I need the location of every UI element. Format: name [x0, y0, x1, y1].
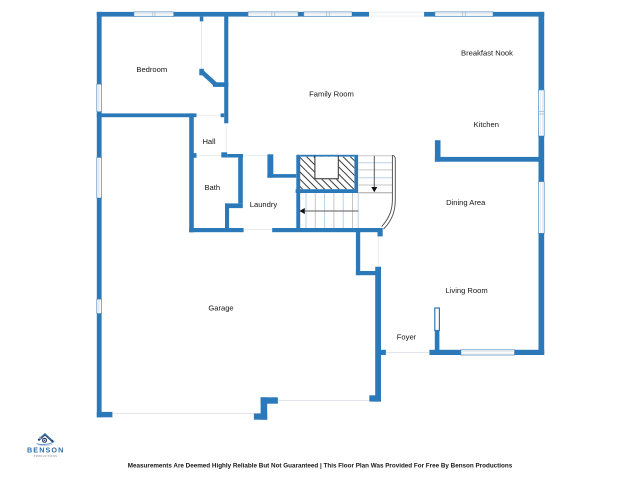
- svg-text:Foyer: Foyer: [397, 333, 417, 342]
- svg-text:Bedroom: Bedroom: [136, 65, 167, 74]
- svg-text:PRODUCTIONS: PRODUCTIONS: [34, 455, 57, 458]
- svg-text:Hall: Hall: [202, 137, 215, 146]
- svg-text:Breakfast Nook: Breakfast Nook: [461, 48, 513, 57]
- svg-text:BENSON: BENSON: [27, 446, 64, 455]
- svg-text:Dining Area: Dining Area: [446, 198, 486, 207]
- svg-text:Living Room: Living Room: [445, 286, 487, 295]
- svg-text:Family Room: Family Room: [309, 89, 354, 98]
- svg-text:Garage: Garage: [208, 303, 233, 312]
- svg-text:Measurements Are Deemed Highly: Measurements Are Deemed Highly Reliable …: [128, 462, 513, 469]
- svg-text:Laundry: Laundry: [250, 200, 278, 209]
- svg-text:Kitchen: Kitchen: [474, 120, 499, 129]
- svg-text:Bath: Bath: [204, 183, 220, 192]
